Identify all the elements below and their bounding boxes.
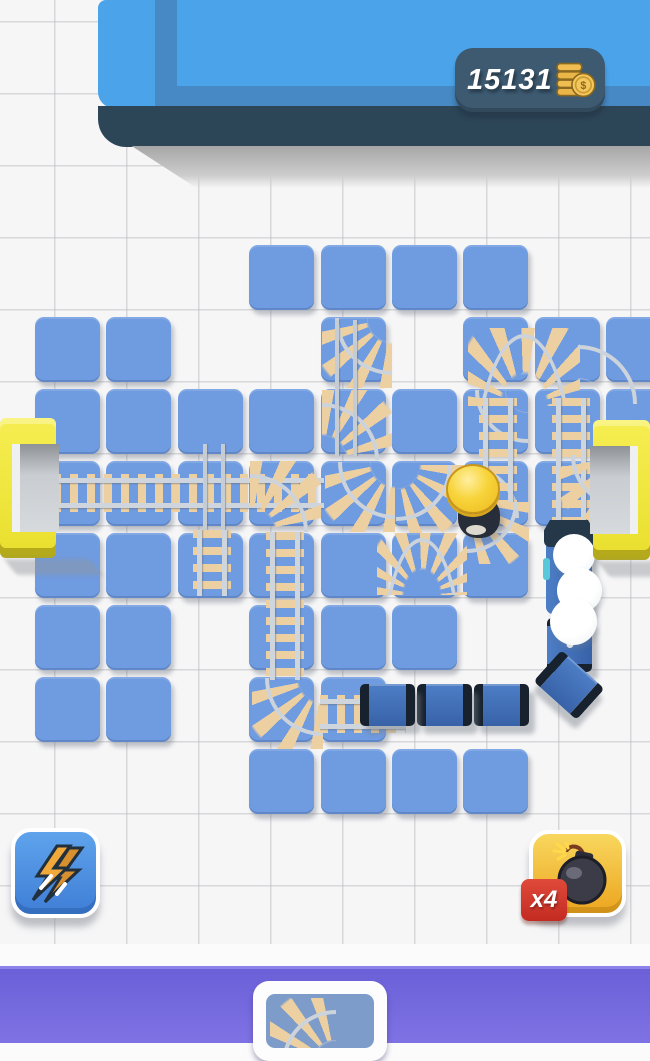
track-track-v[interactable] <box>189 530 235 596</box>
bomb-count-label: x4 <box>531 886 558 914</box>
board-tile[interactable] <box>106 533 171 598</box>
track-dome-down[interactable] <box>468 328 580 406</box>
board-tile[interactable] <box>392 389 457 454</box>
board-tile[interactable] <box>321 533 386 598</box>
bomb-count-badge: x4 <box>521 879 567 921</box>
board-tile[interactable] <box>392 605 457 670</box>
platform-shadow <box>110 146 650 188</box>
coin-count: 15131 <box>467 64 553 97</box>
board-tile[interactable] <box>35 677 100 742</box>
platform-edge-band-vertical <box>155 0 177 88</box>
bomb-powerup-button[interactable]: x4 <box>529 830 626 917</box>
train-wagon <box>360 684 415 726</box>
board-tile[interactable] <box>249 245 314 310</box>
lightning-icon <box>27 842 85 904</box>
board-tile[interactable] <box>463 749 528 814</box>
board-tile[interactable] <box>321 245 386 310</box>
track-rail-v[interactable] <box>200 444 228 538</box>
board-tile[interactable] <box>463 245 528 310</box>
board-tile[interactable] <box>249 389 314 454</box>
board-tile[interactable] <box>106 677 171 742</box>
track-curve-ne[interactable] <box>325 462 395 532</box>
track-curve-ne[interactable] <box>252 678 323 749</box>
next-track-card[interactable] <box>253 981 387 1061</box>
bottom-tile-tray <box>0 966 650 1043</box>
board-tile[interactable] <box>106 317 171 382</box>
coin-counter[interactable]: 15131 $ <box>455 48 605 112</box>
smoke-puff <box>550 598 597 645</box>
train-wagon <box>474 684 529 726</box>
board-tile[interactable] <box>392 749 457 814</box>
board-tile[interactable] <box>392 245 457 310</box>
track-track-v[interactable] <box>262 532 308 680</box>
board-tile[interactable] <box>35 317 100 382</box>
train-wagon <box>417 684 472 726</box>
worker-hard-hat-icon <box>446 464 500 514</box>
card-tile <box>266 994 374 1048</box>
track-curve-sw[interactable] <box>578 332 650 404</box>
track-rail-v[interactable] <box>332 320 360 456</box>
board-tile[interactable] <box>249 749 314 814</box>
coin-stack-icon: $ <box>553 53 597 107</box>
worker-character <box>446 464 502 544</box>
train-wagon <box>533 650 604 720</box>
platform-base <box>98 106 650 147</box>
track-curve-sw[interactable] <box>250 461 321 532</box>
left-track-gate <box>0 418 56 558</box>
board-tile[interactable] <box>35 605 100 670</box>
curved-track-icon <box>270 998 336 1048</box>
board-tile[interactable] <box>106 605 171 670</box>
board-tile[interactable] <box>321 605 386 670</box>
lightning-powerup-button[interactable] <box>11 828 100 918</box>
svg-text:$: $ <box>580 80 586 92</box>
board-tile[interactable] <box>106 389 171 454</box>
right-track-gate <box>593 420 650 560</box>
board-tile[interactable] <box>321 749 386 814</box>
